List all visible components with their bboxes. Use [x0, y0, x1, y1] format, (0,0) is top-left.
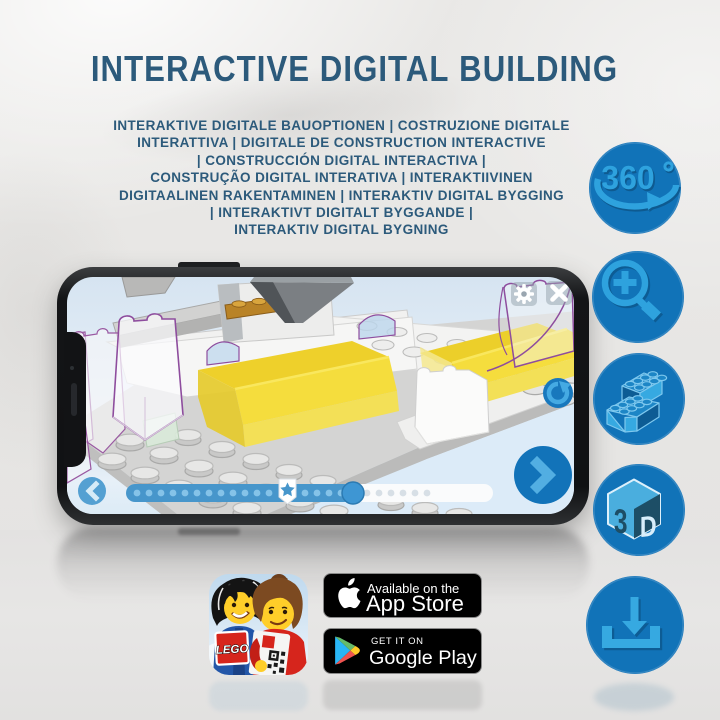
svg-text:D: D [640, 509, 657, 544]
svg-text:360: 360 [601, 160, 654, 197]
svg-text:3: 3 [614, 502, 628, 541]
svg-text:LEGO: LEGO [216, 643, 249, 657]
